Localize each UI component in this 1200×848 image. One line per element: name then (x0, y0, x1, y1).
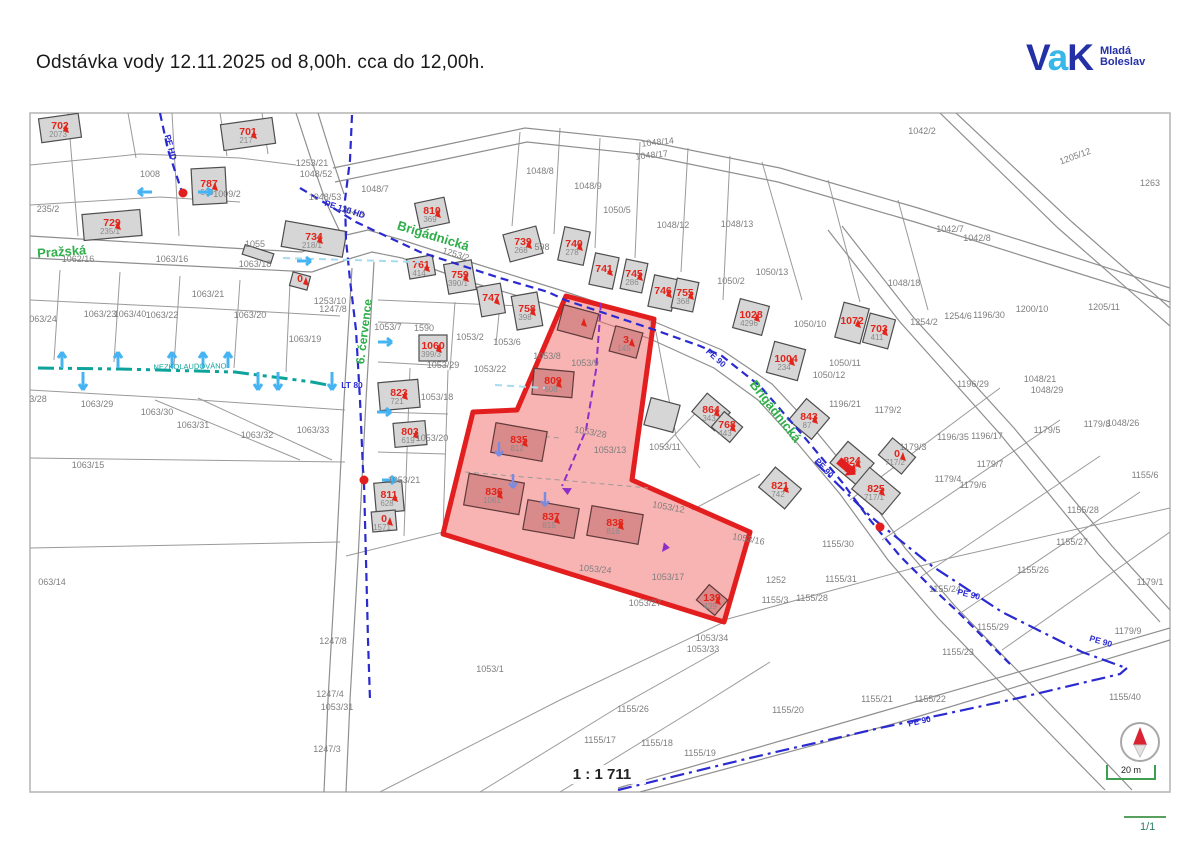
valve-dot (179, 189, 188, 198)
parcel-label: 1196/21 (829, 399, 861, 409)
parcel-label: 1155/26 (617, 704, 649, 714)
parcel-label: 1053/27 (629, 598, 662, 608)
parcel-label: 1053/8 (533, 351, 561, 361)
parcel-label: 1155/19 (684, 748, 716, 758)
parcel-label: 1053/21 (388, 475, 421, 485)
svg-text:1072: 1072 (840, 315, 864, 327)
parcel-label: 1048/9 (574, 181, 602, 191)
parcel-label: 1196/35 (937, 432, 969, 442)
parcel-label: 1590 (414, 323, 434, 333)
parcel-label: 1155/27 (1056, 537, 1088, 547)
parcel-label: 1252 (766, 575, 786, 585)
parcel-label: 1179/4 (935, 474, 962, 484)
parcel-label: 1155/26 (1017, 565, 1049, 575)
parcel-label: 1196/29 (957, 379, 989, 389)
parcel-label: 1063/22 (146, 310, 179, 320)
parcel-label: 1063/15 (72, 460, 105, 470)
parcel-label: 1205/11 (1088, 302, 1120, 312)
parcel-label: 1155/28 (796, 593, 828, 603)
parcel-label: 1179/3 (900, 442, 927, 452)
parcel-label: 1042/2 (908, 126, 936, 136)
svg-text:343: 343 (702, 414, 716, 423)
parcel-label: 1155/22 (914, 694, 946, 704)
parcel-label: 1179/6 (960, 480, 987, 490)
parcel-label: 1179/7 (977, 459, 1004, 469)
parcel-label: 1247/4 (316, 689, 344, 699)
outage-notice-page: Odstávka vody 12.11.2025 od 8,00h. cca d… (0, 0, 1200, 848)
parcel-label: 1179/2 (875, 405, 902, 415)
parcel-label: 1155/20 (772, 705, 804, 715)
parcel-label: 1063/32 (241, 430, 274, 440)
parcel-label: 3/28 (29, 394, 47, 404)
parcel-label: 1008 (140, 169, 160, 179)
parcel-label: 1048/21 (1024, 374, 1057, 384)
parcel-label: 1048/18 (888, 278, 921, 288)
parcel-label: 1253/21 (296, 158, 329, 168)
cadastral-map: 7022073701217787569729235/1734218/108103… (0, 0, 1200, 848)
parcel-label: 1050/10 (794, 319, 827, 329)
svg-text:815: 815 (542, 521, 556, 530)
parcel-label: 1053/6 (493, 337, 521, 347)
parcel-label: 1055 (245, 239, 265, 249)
svg-text:145: 145 (617, 344, 631, 353)
parcel-label: 1053/31 (321, 702, 354, 712)
svg-text:368: 368 (676, 297, 690, 306)
parcel-label: 1048/26 (1107, 418, 1140, 428)
parcel-label: 1048/52 (300, 169, 333, 179)
valve-dot (360, 476, 369, 485)
parcel-label: 1042/8 (963, 233, 991, 243)
svg-text:619: 619 (401, 436, 415, 445)
parcel-label: 1254/6 (944, 311, 972, 321)
svg-text:816: 816 (606, 527, 620, 536)
parcel-label: 1063/20 (234, 310, 267, 320)
parcel-label: 1053/29 (427, 360, 460, 370)
parcel-label: 1063/40 (114, 309, 147, 319)
svg-text:812: 812 (510, 444, 524, 453)
parcel-label: 1063/18 (239, 259, 272, 269)
parcel-label: 1053/34 (696, 633, 729, 643)
parcel-label: 1263 (1140, 178, 1160, 188)
parcel-label: 1048/7 (361, 184, 389, 194)
parcel-label: 1155/40 (1109, 692, 1141, 702)
page-number: 1/1 (1140, 821, 1155, 833)
building-number: 1072 (840, 315, 864, 327)
parcel-label: 1247/3 (313, 744, 341, 754)
svg-text:721: 721 (390, 397, 404, 406)
parcel-label: 1155/6 (1132, 470, 1159, 480)
parcel-label: 1179/1 (1137, 577, 1164, 587)
parcel-label: 1254/2 (910, 317, 938, 327)
parcel-label: 1196/30 (973, 310, 1005, 320)
parcel-label: 1196/17 (971, 431, 1003, 441)
parcel-label: 1155/24 (929, 584, 961, 594)
svg-text:234: 234 (777, 363, 791, 372)
parcel-label: 1155/29 (977, 622, 1009, 632)
parcel-label: 1053/20 (416, 433, 449, 443)
svg-text:439: 439 (703, 602, 717, 611)
svg-text:0: 0 (297, 273, 303, 285)
north-compass (1121, 723, 1159, 761)
svg-text:608: 608 (544, 385, 558, 394)
parcel-label: 1053/2 (456, 332, 484, 342)
parcel-label: 1053/9 (571, 358, 599, 368)
parcel-label: 1063/16 (156, 254, 189, 264)
parcel-label: 1053/13 (594, 445, 627, 455)
parcel-label: 1042/7 (936, 224, 964, 234)
parcel-label: 1155/18 (641, 738, 673, 748)
parcel-label: 1053/11 (649, 442, 681, 452)
parcel-label: 1050/2 (717, 276, 745, 286)
valve-dot (876, 523, 885, 532)
scalebar-label: 20 m (1121, 765, 1141, 775)
parcel-label: 1009/2 (213, 189, 241, 199)
svg-text:411: 411 (871, 333, 884, 342)
parcel-label: 1063/19 (289, 334, 322, 344)
parcel-label: 1155/30 (822, 539, 854, 549)
parcel-label: 1155/28 (1067, 505, 1099, 515)
parcel-label: 1247/8 (319, 636, 347, 646)
parcel-label: 1053/18 (421, 392, 454, 402)
parcel-label: 1179/5 (1034, 425, 1061, 435)
parcel-label: 1053/17 (652, 572, 685, 582)
parcel-label: 1053/33 (687, 644, 720, 654)
parcel-label: 1247/8 (319, 304, 347, 314)
svg-text:443: 443 (718, 429, 732, 438)
parcel-label: 598 (534, 242, 549, 252)
svg-text:628: 628 (380, 499, 394, 508)
parcel-label: 1053/7 (374, 322, 402, 332)
parcel-label: 1048/8 (526, 166, 554, 176)
footer-divider (1124, 816, 1166, 818)
svg-text:278: 278 (565, 248, 579, 257)
parcel-label: 1179/9 (1115, 626, 1142, 636)
parcel-label: 1155/21 (861, 694, 893, 704)
parcel-label: 063/14 (38, 577, 66, 587)
svg-text:286: 286 (625, 278, 639, 287)
parcel-label: 1063/29 (81, 399, 114, 409)
parcel-label: 1050/13 (756, 267, 789, 277)
svg-text:217: 217 (239, 136, 253, 145)
svg-text:87: 87 (803, 421, 812, 430)
parcel-label: 1200/10 (1016, 304, 1049, 314)
svg-text:414: 414 (412, 269, 426, 278)
parcel-label: 1050/11 (829, 358, 861, 368)
map-scale-text: 1 : 1 711 (573, 766, 631, 783)
parcel-label: 1155/17 (584, 735, 616, 745)
parcel-label: 063/24 (29, 314, 57, 324)
parcel-label: 1048/12 (657, 220, 690, 230)
parcel-label: 1155/23 (942, 647, 974, 657)
parcel-label: 1048/13 (721, 219, 754, 229)
parcel-label: 1048/29 (1031, 385, 1064, 395)
parcel-label: 1155/31 (825, 574, 857, 584)
parcel-label: 1050/12 (813, 370, 846, 380)
parcel-label: 1063/23 (84, 309, 117, 319)
parcel-label: 1063/31 (177, 420, 210, 430)
svg-text:398: 398 (518, 313, 532, 322)
pipe-label: LT 80 (341, 380, 363, 390)
parcel-label: 1063/33 (297, 425, 330, 435)
parcel-label: 1063/30 (141, 407, 174, 417)
building-number: 0 (297, 273, 303, 285)
parcel-label: 1063/21 (192, 289, 225, 299)
svg-text:369: 369 (423, 215, 437, 224)
parcel-label: 1053/1 (476, 664, 504, 674)
parcel-label: 1155/3 (762, 595, 789, 605)
teal-note-label: NEZKOLAUDOVÁNO (153, 361, 226, 371)
svg-text:742: 742 (771, 490, 785, 499)
parcel-label: 235/2 (37, 204, 60, 214)
parcel-label: 1050/5 (603, 205, 631, 215)
parcel-label: 1053/22 (474, 364, 507, 374)
svg-text:268: 268 (514, 246, 528, 255)
